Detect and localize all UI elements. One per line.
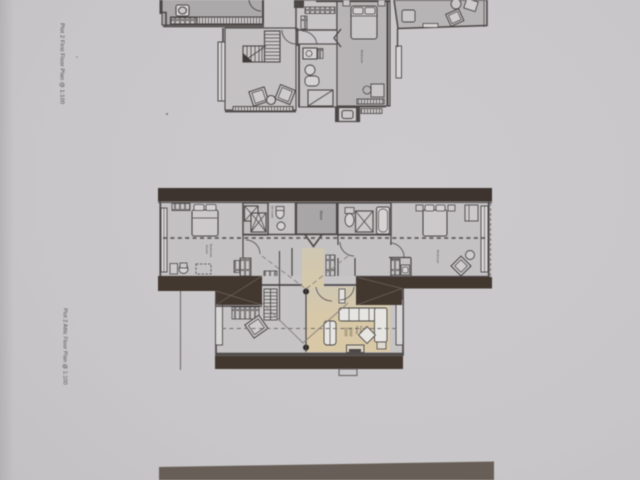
svg-text:En-suite: En-suite <box>271 206 275 218</box>
svg-text:Bedroom: Bedroom <box>360 50 364 64</box>
svg-text:Store: Store <box>319 211 323 221</box>
svg-text:Room: Room <box>359 326 363 333</box>
svg-text:Family: Family <box>355 326 359 335</box>
svg-text:Bedroom: Bedroom <box>209 244 213 258</box>
svg-text:Plot 2 Attic Floor Plan @ 1:10: Plot 2 Attic Floor Plan @ 1:100 <box>62 308 68 385</box>
svg-text:Bedroom: Bedroom <box>436 250 440 264</box>
svg-text:Guest: Guest <box>205 245 209 254</box>
svg-text:Plot 2 First Floor Plan @ 1:10: Plot 2 First Floor Plan @ 1:100 <box>59 23 65 104</box>
